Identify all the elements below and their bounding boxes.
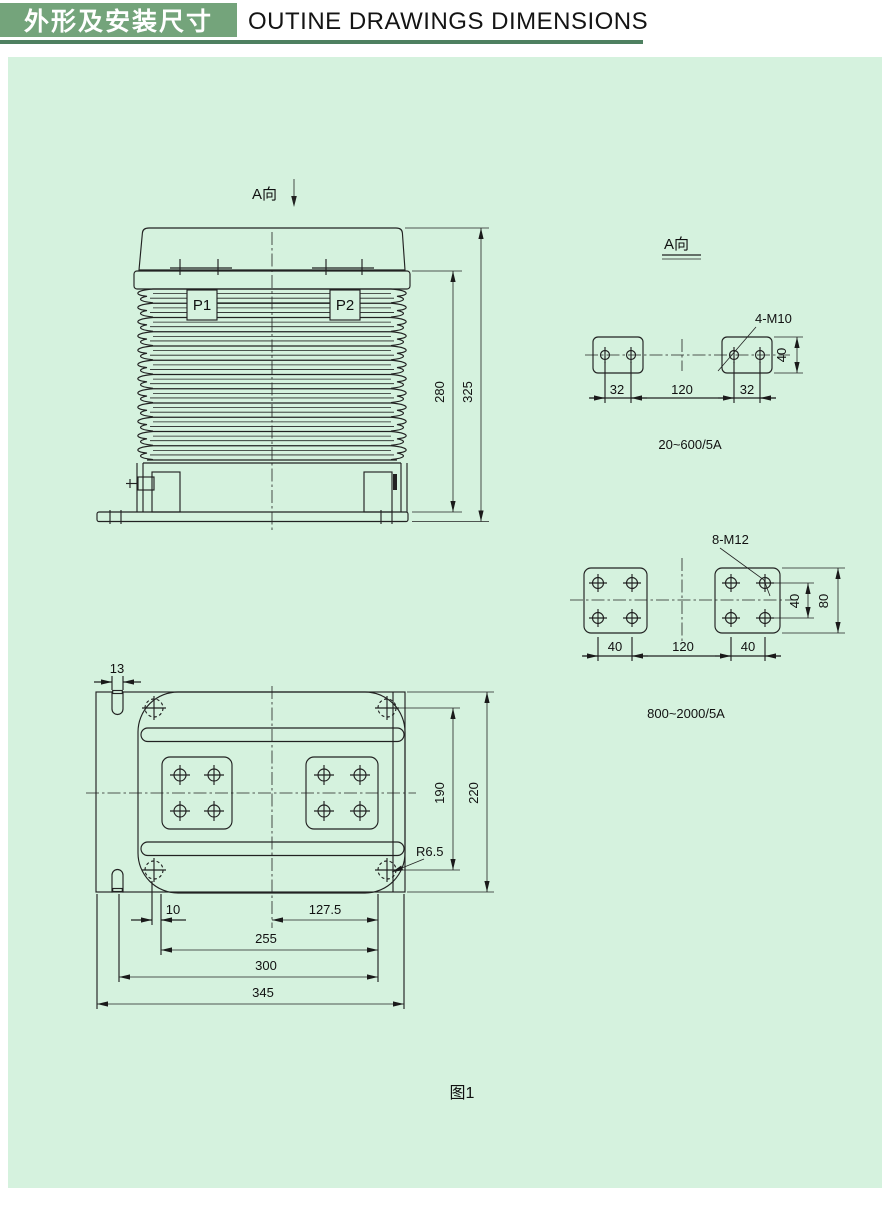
dim-32-right-text: 32 [740,382,754,397]
dim-32-left-text: 32 [610,382,624,397]
drawing-canvas: A向 P1 [0,45,890,1205]
dim-40-text: 40 [774,348,789,362]
dim-40-left-text: 40 [608,639,622,654]
dim-127-5-text: 127.5 [309,902,342,917]
view-a-label: A向 [252,186,277,203]
drawing-panel-background [8,57,882,1188]
dim-40-right-text: 40 [741,639,755,654]
dim-40-inner-text: 40 [787,594,802,608]
dim-120-text: 120 [672,639,694,654]
page-title-en: OUTINE DRAWINGS DIMENSIONS [248,6,648,38]
page-title-cn: 外形及安装尺寸 [0,3,237,37]
a-view-title: A向 [664,236,689,253]
dim-345-text: 345 [252,985,274,1000]
dim-190-text: 190 [432,782,447,804]
terminal-p2-label: P2 [336,297,354,314]
dim-300-text: 300 [255,958,277,973]
figure-caption: 图1 [450,1085,475,1102]
range-label-20-600: 20~600/5A [658,437,722,452]
dim-120-text: 120 [671,382,693,397]
title-underline [0,40,643,44]
dim-325-text: 325 [460,381,475,403]
dim-280-text: 280 [432,381,447,403]
range-label-800-2000: 800~2000/5A [647,706,725,721]
dim-80-text: 80 [816,594,831,608]
dim-220-text: 220 [466,782,481,804]
terminal-p1-label: P1 [193,297,211,314]
secondary-terminal-block [393,474,397,490]
callout-4m10-text: 4-M10 [755,311,792,326]
radius-callout-text: R6.5 [416,844,443,859]
dim-255-text: 255 [255,931,277,946]
dim-10-text: 10 [166,902,180,917]
dim-13-text: 13 [110,661,124,676]
page: { "header": { "title_cn": "外形及安装尺寸", "ti… [0,0,890,1205]
callout-8m12-text: 8-M12 [712,532,749,547]
